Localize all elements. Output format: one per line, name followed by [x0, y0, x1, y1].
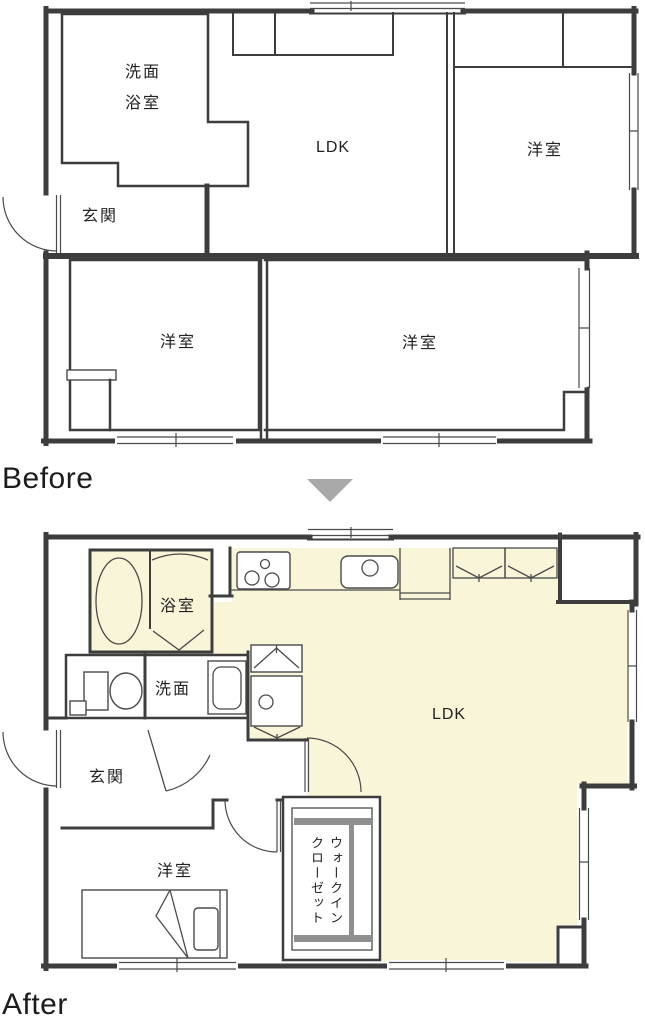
- entrance-door-arc: [3, 732, 57, 786]
- after-washroom-label: 洗面: [155, 675, 191, 699]
- before-ldk-label: LDK: [316, 139, 350, 157]
- kitchen-sink: [341, 556, 398, 588]
- walk-in-closet-label: ウォークイン クローゼット: [307, 836, 345, 926]
- bed: [82, 890, 227, 958]
- door-swing-arc: [3, 197, 57, 251]
- before-title: Before: [2, 462, 93, 496]
- washroom-door-arc: [166, 755, 210, 791]
- floorplan-comparison: Before After 洗面 浴室 玄関 LDK 洋室 洋室 洋室 浴室 洗面…: [0, 0, 645, 1024]
- after-storage-stack: [248, 645, 307, 741]
- before-western-room-top-label: 洋室: [527, 136, 563, 160]
- toilet-paper-holder: [70, 701, 86, 715]
- pipe-space: [562, 539, 634, 600]
- down-triangle-arrow-icon: [307, 479, 353, 502]
- closet-rod: [294, 818, 372, 825]
- after-hall-walls: [62, 800, 283, 828]
- closet-shelf: [67, 370, 116, 380]
- toilet-tank: [84, 672, 108, 710]
- before-washroom-label: 洗面: [125, 58, 161, 82]
- stove: [237, 552, 290, 589]
- after-bathroom-label: 浴室: [160, 592, 196, 616]
- pipe-shaft: [561, 930, 582, 964]
- bedroom-door-arc: [225, 800, 277, 852]
- closet-rod: [349, 825, 354, 935]
- before-entrance-label: 玄関: [82, 202, 118, 226]
- before-entrance-door: [3, 195, 61, 253]
- after-ldk-fill: [214, 548, 627, 962]
- washroom-door-leaf: [148, 730, 166, 791]
- before-bathroom-label: 浴室: [125, 89, 161, 113]
- after-washroom-block: [46, 652, 248, 740]
- pillow: [194, 908, 218, 950]
- closet-rod: [294, 935, 372, 942]
- before-western-room-right-label: 洋室: [402, 329, 438, 353]
- after-title: After: [2, 988, 68, 1022]
- before-western-room-left-label: 洋室: [160, 328, 196, 352]
- after-entrance-label: 玄関: [89, 763, 125, 787]
- after-western-room-label: 洋室: [157, 857, 193, 881]
- toilet-bowl: [110, 673, 142, 709]
- vanity-cabinet: [208, 661, 246, 714]
- after-ldk-label: LDK: [432, 706, 466, 724]
